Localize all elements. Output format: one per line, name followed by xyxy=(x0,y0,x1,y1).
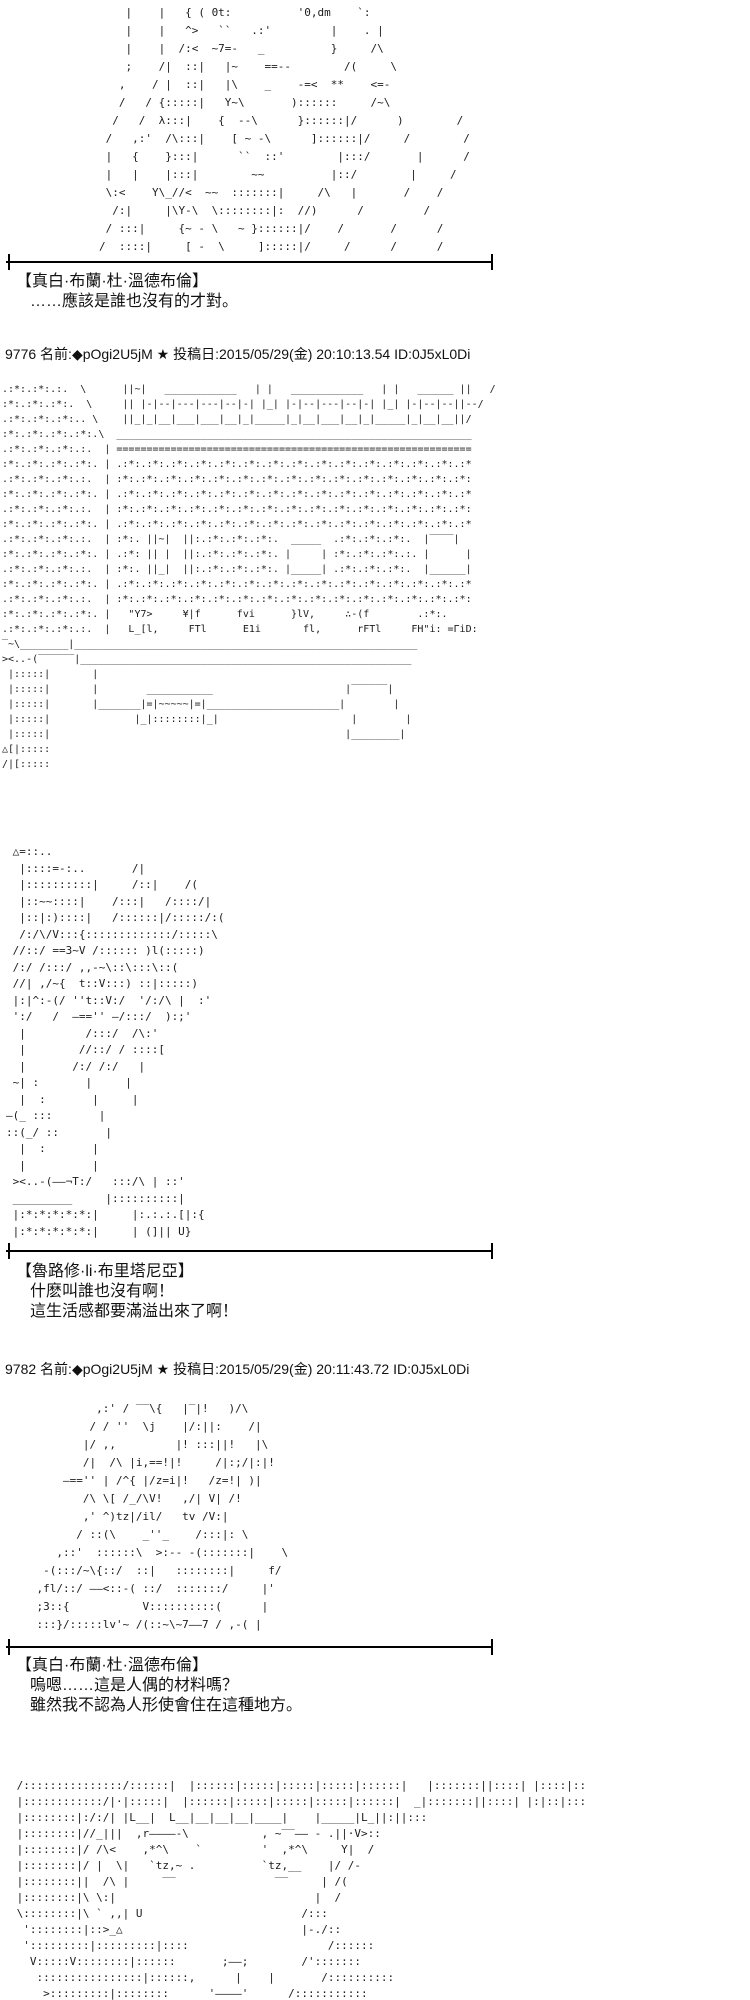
ascii-art-warehouse-room: .:*:.:*:.:. \ ||~| ____________ | | ____… xyxy=(2,382,496,772)
divider-right-tick xyxy=(491,1639,493,1655)
aa-thread-page: | | { ( 0t: '0,dm `: | | ^> `` .:' | . |… xyxy=(0,0,750,2000)
date-label: 投稿日: xyxy=(173,346,219,362)
dialogue-block-1: 【真白·布蘭·杜·溫德布倫】 ……應該是誰也沒有的才對。 xyxy=(16,272,238,312)
divider-right-tick xyxy=(491,1243,493,1259)
tripcode: ◆pOgi2U5jM xyxy=(72,346,153,362)
ascii-art-character-reclining: ,:' / ‾‾\{ |‾|! )/\ / / '' \j |/:||: /| … xyxy=(10,1400,288,1634)
post-divider xyxy=(6,1646,493,1648)
name-label: 名前: xyxy=(40,346,72,362)
post-datetime: 2015/05/29(金) 20:11:43.72 xyxy=(219,1361,389,1377)
ascii-art-top-partial: | | { ( 0t: '0,dm `: | | ^> `` .:' | . |… xyxy=(46,4,470,256)
poster-id: ID:0J5xL0Di xyxy=(393,1361,469,1377)
dialogue-line: 嗚嗯……這是人偶的材料嗎？ xyxy=(30,1676,302,1696)
post-divider xyxy=(6,261,493,263)
post-datetime: 2015/05/29(金) 20:10:13.54 xyxy=(219,346,390,362)
dialogue-line: 什麽叫誰也沒有啊！ xyxy=(30,1282,238,1302)
ascii-art-character-closeup: △=::.. |::::=-:.. /| |::::::::::| /::| /… xyxy=(6,844,225,1240)
divider-right-tick xyxy=(491,254,493,270)
tripcode: ◆pOgi2U5jM xyxy=(72,1361,153,1377)
post-header-9782: 9782 名前:◆pOgi2U5jM ★ 投稿日:2015/05/29(金) 2… xyxy=(5,1360,469,1378)
post-number: 9776 xyxy=(5,346,36,362)
post-number: 9782 xyxy=(5,1361,36,1377)
dialogue-line: ……應該是誰也沒有的才對。 xyxy=(30,292,238,312)
divider-left-tick xyxy=(8,254,10,270)
speaker-name: 【魯路修·li·布里塔尼亞】 xyxy=(16,1262,238,1282)
divider-left-tick xyxy=(8,1639,10,1655)
dialogue-line: 雖然我不認為人形使會住在這種地方。 xyxy=(30,1696,302,1716)
poster-id: ID:0J5xL0Di xyxy=(394,346,470,362)
speaker-name: 【真白·布蘭·杜·溫德布倫】 xyxy=(16,272,238,292)
post-divider xyxy=(6,1250,493,1252)
name-label: 名前: xyxy=(40,1361,72,1377)
date-label: 投稿日: xyxy=(173,1361,219,1377)
star-icon: ★ xyxy=(157,346,170,362)
speaker-name: 【真白·布蘭·杜·溫德布倫】 xyxy=(16,1656,302,1676)
post-header-9776: 9776 名前:◆pOgi2U5jM ★ 投稿日:2015/05/29(金) 2… xyxy=(5,345,470,363)
dialogue-block-2: 【魯路修·li·布里塔尼亞】 什麽叫誰也沒有啊！ 這生活感都要滿溢出來了啊！ xyxy=(16,1262,238,1322)
star-icon: ★ xyxy=(157,1361,170,1377)
dialogue-block-3: 【真白·布蘭·杜·溫德布倫】 嗚嗯……這是人偶的材料嗎？ 雖然我不認為人形使會住… xyxy=(16,1656,302,1716)
dialogue-line: 這生活感都要滿溢出來了啊！ xyxy=(30,1302,238,1322)
divider-left-tick xyxy=(8,1243,10,1259)
ascii-art-shelf-room: /:::::::::::::::/::::::| |::::::|:::::|:… xyxy=(10,1778,586,2000)
